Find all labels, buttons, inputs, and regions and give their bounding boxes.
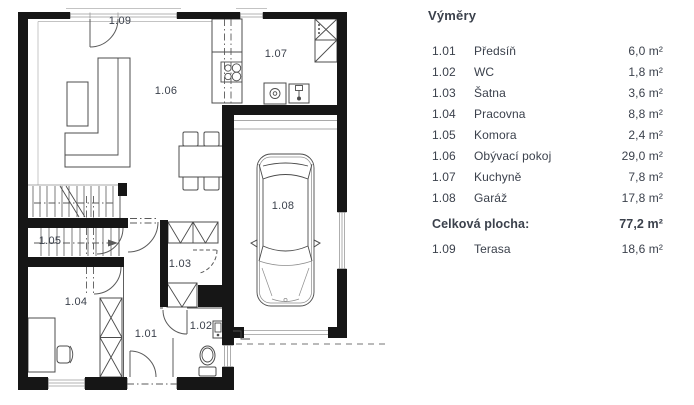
kitchen-corner-sink [315,19,337,62]
window-terrace-small [240,13,263,19]
legend-room-number: 1.03 [432,86,474,100]
window-wc [223,345,234,367]
legend-row: 1.04 Pracovna 8,8 m² [418,103,663,124]
kitchen-appliances [264,83,309,104]
wc-sink [213,321,223,338]
legend-room-area: 29,0 m² [622,149,663,163]
hall-living-door [128,222,158,252]
legend-rows: 1.01 Předsíň 6,0 m² 1.02 WC 1,8 m² 1.03 … [418,40,663,208]
window-garage [338,212,347,269]
legend-panel: Výměry 1.01 Předsíň 6,0 m² 1.02 WC 1,8 m… [418,8,663,259]
legend-room-area: 17,8 m² [622,191,663,205]
closet-door [193,250,217,273]
legend-row: 1.03 Šatna 3,6 m² [418,82,663,103]
room-label-1-03: 1.03 [169,258,192,270]
legend-room-area: 3,6 m² [628,86,663,100]
legend-room-number: 1.02 [432,65,474,79]
legend-room-number: 1.01 [432,44,474,58]
floor-plan: 1.01 1.02 1.03 1.04 1.05 1.06 1.07 1.08 … [0,0,400,400]
wardrobe-closet-top [168,222,218,243]
toilet [199,346,216,376]
legend-room-name: Garáž [474,191,622,205]
study-door [94,267,121,294]
legend-room-name: WC [474,65,628,79]
legend-row: 1.02 WC 1,8 m² [418,61,663,82]
legend-room-area: 8,8 m² [628,107,663,121]
legend-title: Výměry [418,8,663,23]
garage-door-opening [244,331,328,335]
legend-row: 1.08 Garáž 17,8 m² [418,187,663,208]
legend-row: 1.06 Obývací pokoj 29,0 m² [418,145,663,166]
desk-chair [57,346,73,363]
desk [28,318,55,372]
floorplan-page: { "plan": { "labels": ["1.01", "1.02", "… [0,0,694,400]
wc-door [163,310,187,334]
legend-room-number: 1.07 [432,170,474,184]
legend-room-area: 18,6 m² [622,242,663,256]
kitchen-counter [212,19,242,103]
legend-row: 1.01 Předsíň 6,0 m² [418,40,663,61]
entrance-opening [128,378,177,389]
wardrobe-study [100,298,122,377]
legend-room-name: Šatna [474,86,628,100]
room-label-1-02: 1.02 [190,320,213,332]
legend-room-name: Předsíň [474,44,628,58]
room-label-1-09: 1.09 [109,15,132,27]
legend-total-area: 77,2 m² [619,217,663,231]
windows [48,13,347,390]
legend-room-name: Kuchyně [474,170,628,184]
front-door [130,351,156,377]
legend-total-row: Celková plocha: 77,2 m² [418,213,663,235]
room-label-1-01: 1.01 [135,328,158,340]
legend-room-number: 1.05 [432,128,474,142]
room-label-1-05: 1.05 [39,235,62,247]
room-label-1-07: 1.07 [265,48,288,60]
coffee-table [67,82,88,126]
legend-room-name: Pracovna [474,107,628,121]
legend-room-number: 1.04 [432,107,474,121]
legend-room-number: 1.06 [432,149,474,163]
legend-room-area: 1,8 m² [628,65,663,79]
legend-room-name: Obývací pokoj [474,149,622,163]
legend-row: 1.05 Komora 2,4 m² [418,124,663,145]
room-label-1-04: 1.04 [65,296,88,308]
driveway-lines [233,331,390,344]
legend-terrace-row: 1.09 Terasa 18,6 m² [418,238,663,259]
legend-room-name: Komora [474,128,628,142]
legend-room-area: 7,8 m² [628,170,663,184]
dining-set [179,132,223,190]
legend-room-name: Terasa [474,242,622,256]
room-label-1-06: 1.06 [155,85,178,97]
legend-room-number: 1.09 [432,242,474,256]
car [251,154,320,306]
room-label-1-08: 1.08 [272,200,295,212]
floor-plan-drawing: 1.01 1.02 1.03 1.04 1.05 1.06 1.07 1.08 … [0,0,400,400]
legend-room-area: 2,4 m² [628,128,663,142]
legend-room-number: 1.08 [432,191,474,205]
legend-row: 1.07 Kuchyně 7,8 m² [418,166,663,187]
window-study [48,378,85,389]
wardrobe-closet-bottom [167,283,197,307]
legend-total-label: Celková plocha: [432,217,619,231]
legend-room-area: 6,0 m² [628,44,663,58]
